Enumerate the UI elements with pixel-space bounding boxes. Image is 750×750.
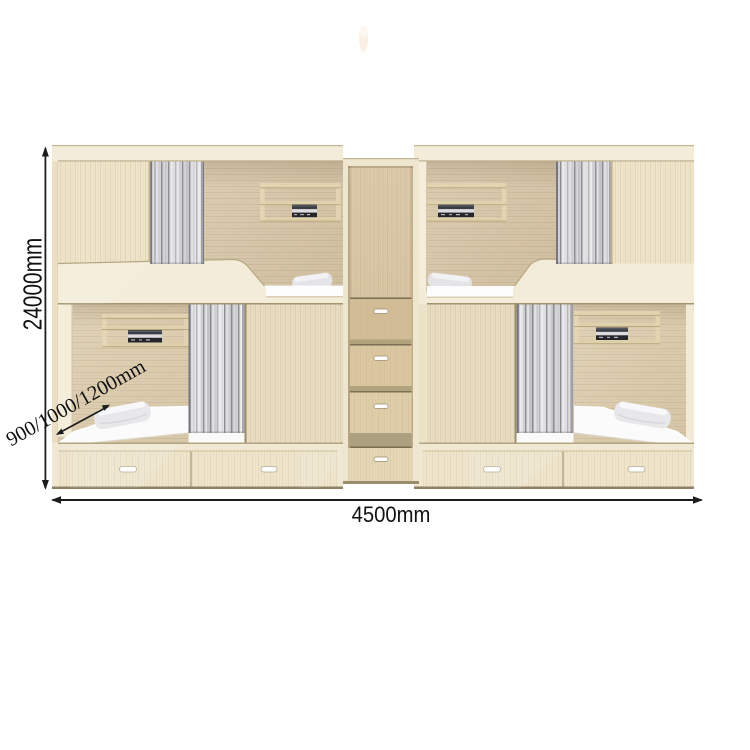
svg-text:4500mm: 4500mm xyxy=(352,502,431,527)
svg-text:24000mm: 24000mm xyxy=(18,238,47,330)
